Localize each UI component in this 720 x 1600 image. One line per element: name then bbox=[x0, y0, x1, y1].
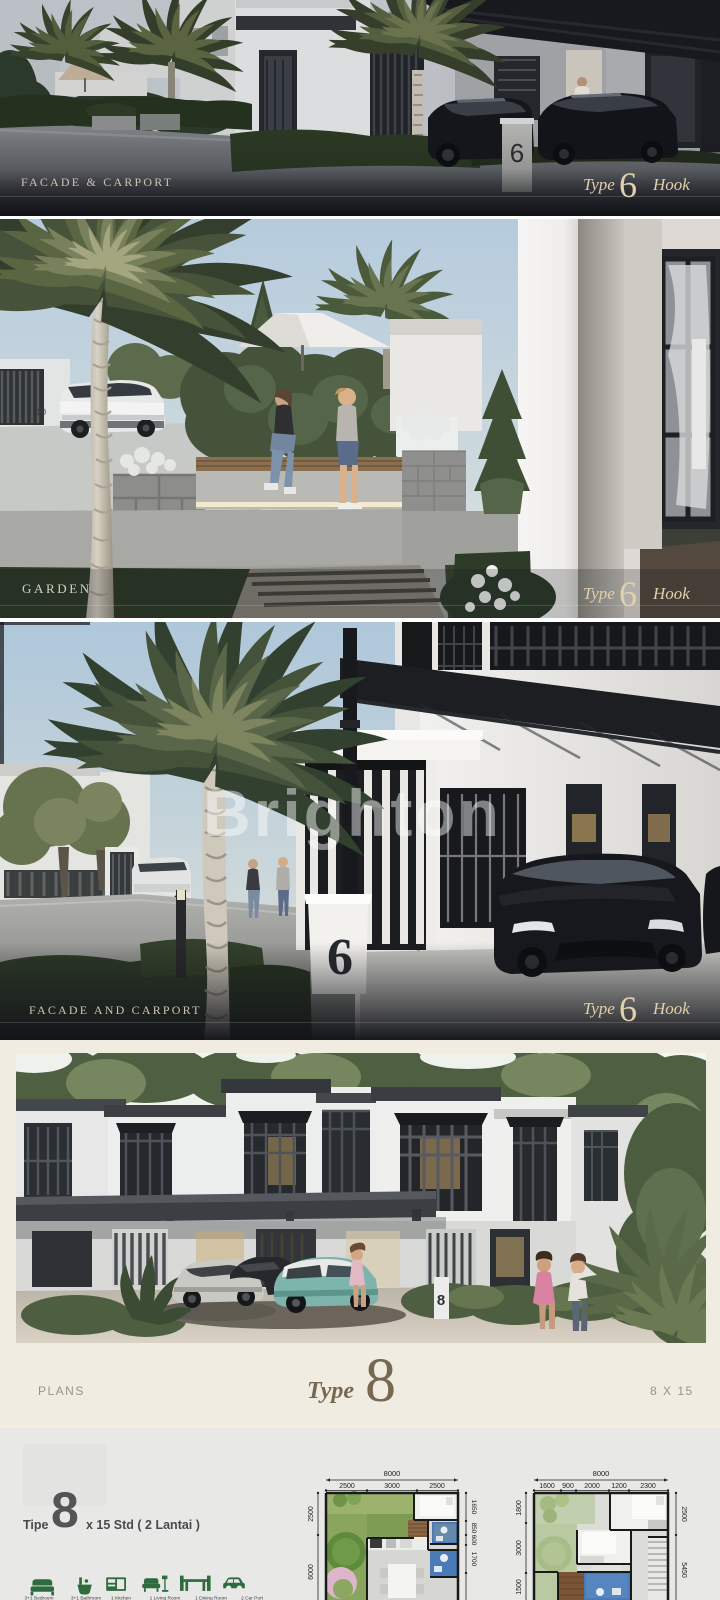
svg-text:3+1 Bedroom: 3+1 Bedroom bbox=[25, 1596, 54, 1600]
svg-text:850: 850 bbox=[470, 1523, 477, 1534]
svg-text:Hook: Hook bbox=[652, 175, 690, 194]
svg-text:3+1 Bathroom: 3+1 Bathroom bbox=[71, 1596, 101, 1600]
svg-text:10: 10 bbox=[36, 407, 46, 417]
svg-text:1650: 1650 bbox=[470, 1500, 477, 1515]
svg-text:1 Living Room: 1 Living Room bbox=[150, 1596, 181, 1600]
svg-text:8: 8 bbox=[437, 1292, 445, 1309]
svg-text:1 Kitchen: 1 Kitchen bbox=[111, 1596, 131, 1600]
svg-text:8000: 8000 bbox=[384, 1469, 401, 1478]
svg-text:600: 600 bbox=[470, 1535, 477, 1546]
svg-text:900: 900 bbox=[562, 1483, 574, 1490]
svg-text:6000: 6000 bbox=[308, 1564, 315, 1580]
svg-text:2500: 2500 bbox=[339, 1483, 355, 1490]
svg-text:Brighton: Brighton bbox=[203, 776, 502, 850]
svg-text:2500: 2500 bbox=[429, 1483, 445, 1490]
svg-text:1600: 1600 bbox=[539, 1483, 555, 1490]
svg-text:Type: Type bbox=[583, 999, 615, 1018]
svg-text:5450: 5450 bbox=[680, 1562, 687, 1578]
svg-text:2500: 2500 bbox=[680, 1506, 687, 1522]
svg-text:2 Car Port: 2 Car Port bbox=[241, 1596, 264, 1600]
svg-text:8000: 8000 bbox=[593, 1469, 610, 1478]
svg-text:1700: 1700 bbox=[470, 1552, 477, 1567]
svg-text:2500: 2500 bbox=[308, 1506, 315, 1522]
svg-text:GARDEN: GARDEN bbox=[22, 581, 92, 596]
svg-text:1 Dining Room: 1 Dining Room bbox=[195, 1596, 227, 1600]
svg-text:2000: 2000 bbox=[584, 1483, 600, 1490]
svg-text:Hook: Hook bbox=[652, 584, 690, 603]
svg-text:1200: 1200 bbox=[611, 1483, 627, 1490]
svg-text:6: 6 bbox=[619, 989, 637, 1029]
svg-text:2300: 2300 bbox=[640, 1483, 656, 1490]
svg-text:1500: 1500 bbox=[516, 1579, 523, 1595]
svg-text:3000: 3000 bbox=[384, 1483, 400, 1490]
svg-text:6: 6 bbox=[619, 574, 637, 614]
svg-text:Hook: Hook bbox=[652, 999, 690, 1018]
svg-text:1800: 1800 bbox=[516, 1500, 523, 1516]
svg-text:Type: Type bbox=[583, 584, 615, 603]
svg-text:6: 6 bbox=[619, 165, 637, 205]
svg-text:FACADE AND CARPORT: FACADE AND CARPORT bbox=[29, 1003, 202, 1017]
svg-text:FACADE & CARPORT: FACADE & CARPORT bbox=[21, 175, 173, 189]
svg-text:Type: Type bbox=[583, 175, 615, 194]
svg-text:3000: 3000 bbox=[516, 1540, 523, 1556]
